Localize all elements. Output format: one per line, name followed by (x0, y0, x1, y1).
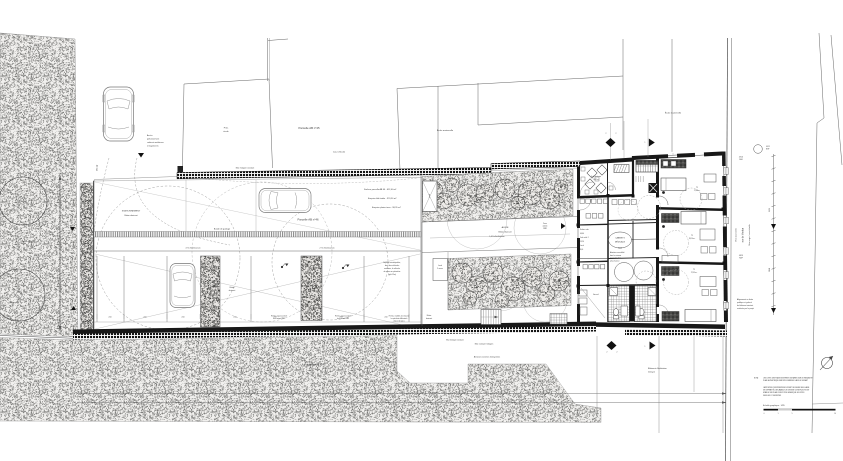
svg-text:1,5% d’inclinaison: 1,5% d’inclinaison (489, 236, 504, 238)
svg-text:restituée par le projet: restituée par le projet (737, 307, 754, 310)
svg-text:T1: T1 (693, 269, 695, 271)
svg-text:drainant: drainant (229, 289, 236, 292)
svg-text:2,50: 2,50 (143, 317, 146, 319)
svg-text:Emprise bâti totale : 374,50 m: Emprise bâti totale : 374,50 m² (368, 197, 397, 200)
svg-text:piétonnement: piétonnement (147, 138, 160, 141)
svg-text:Bâtiment d’habitation: Bâtiment d’habitation (648, 367, 667, 370)
svg-text:SEUILLES ET DEFINITIES: SEUILLES ET DEFINITIES (763, 395, 781, 397)
svg-text:15,94: 15,94 (57, 250, 59, 256)
svg-text:Haie: Haie (209, 293, 211, 297)
svg-text:Mur mitoyen existant: Mur mitoyen existant (446, 339, 464, 342)
svg-text:1: 1 (645, 346, 646, 348)
svg-text:15,20: 15,20 (580, 241, 584, 243)
svg-text:2 roues: 2 roues (437, 267, 443, 270)
svg-text:Cab. méd. 2: Cab. méd. 2 (580, 237, 589, 239)
svg-text:Béton drainant: Béton drainant (124, 214, 137, 217)
svg-text:Parcelle AB n°45: Parcelle AB n°45 (304, 363, 325, 367)
svg-text:2: 2 (617, 352, 618, 354)
svg-text:Echelle graphique : 1/85: Echelle graphique : 1/85 (763, 405, 785, 407)
svg-text:Alignement en limite: Alignement en limite (737, 298, 753, 301)
svg-text:NGF: NGF (739, 159, 743, 161)
svg-text:8,50: 8,50 (518, 400, 522, 402)
svg-text:entrantes, le véhicule: entrantes, le véhicule (384, 267, 400, 270)
svg-text:École maternelle: École maternelle (437, 129, 454, 132)
svg-text:Béton drainant: Béton drainant (498, 231, 511, 234)
svg-text:44,60: 44,60 (580, 233, 584, 235)
svg-text:STATIONNEMENT: STATIONNEMENT (122, 210, 141, 213)
svg-text:NGF: NGF (766, 149, 769, 151)
svg-text:18,6 ngf: 18,6 ngf (97, 164, 99, 171)
svg-text:drainant: drainant (426, 317, 433, 320)
svg-text:Béton: Béton (230, 286, 235, 289)
svg-text:Mur existant mitoyen: Mur existant mitoyen (475, 343, 493, 346)
svg-text:2 % d’inclinaison: 2 % d’inclinaison (320, 248, 335, 250)
svg-text:Local: Local (580, 245, 584, 247)
svg-text:Surface parcelle AB 46 : 612,4: Surface parcelle AB 46 : 612,40 m² (364, 188, 397, 191)
svg-text:2,50: 2,50 (108, 317, 111, 319)
svg-text:28,40: 28,40 (769, 268, 771, 272)
svg-text:2,50: 2,50 (233, 317, 236, 319)
svg-text:cabinets médicaux: cabinets médicaux (147, 141, 164, 144)
svg-text:Parcelle AB n°46: Parcelle AB n°46 (297, 218, 318, 222)
svg-text:10: 10 (834, 413, 836, 415)
svg-text:Local: Local (429, 193, 431, 198)
svg-text:NGF: NGF (739, 258, 743, 260)
svg-text:ALLÉE: ALLÉE (502, 226, 509, 229)
svg-text:T1: T1 (696, 187, 698, 189)
svg-text:2: 2 (607, 352, 608, 354)
svg-text:Mirconnier: Mirconnier (9, 302, 19, 304)
svg-text:rue de Verdun: rue de Verdun (742, 227, 745, 242)
svg-text:Voie accessible: Voie accessible (736, 227, 738, 242)
svg-text:54,20: 54,20 (468, 391, 473, 393)
svg-text:1: 1 (645, 142, 646, 144)
svg-text:Mur mitoyen: Mur mitoyen (428, 391, 438, 394)
svg-text:du bâtiment existant: du bâtiment existant (737, 304, 754, 307)
svg-text:2: 2 (616, 133, 617, 135)
svg-text:mitoyen: mitoyen (648, 371, 655, 374)
svg-text:Béton: Béton (427, 314, 431, 317)
svg-text:Parcelle AB n°45: Parcelle AB n°45 (20, 240, 36, 243)
svg-text:publique et gabarit: publique et gabarit (737, 301, 752, 304)
svg-text:Zone: Zone (543, 223, 547, 225)
svg-text:école: école (223, 131, 229, 133)
svg-text:de retour au périmètre: de retour au périmètre (384, 270, 401, 273)
svg-text:Parcelle AB n°45: Parcelle AB n°45 (298, 126, 319, 130)
svg-text:Annexes voisines mitoyennes: Annexes voisines mitoyennes (474, 356, 500, 359)
svg-text:Dépose minute/palette,: Dépose minute/palette, (383, 261, 401, 264)
svg-text:Mur mitoyen existant: Mur mitoyen existant (236, 167, 255, 170)
svg-text:Bande de guidage: Bande de guidage (214, 229, 231, 231)
svg-text:2: 2 (606, 133, 607, 135)
svg-text:École maternelle: École maternelle (665, 112, 682, 115)
svg-text:Mirconnier: Mirconnier (9, 210, 19, 212)
svg-text:8,40: 8,40 (580, 249, 583, 251)
svg-text:T1: T1 (691, 235, 693, 237)
svg-text:MÉDICAUX: MÉDICAUX (615, 241, 626, 244)
svg-text:4 % d’inclinaison: 4 % d’inclinaison (186, 248, 201, 250)
svg-text:(light 15m): (light 15m) (388, 273, 396, 276)
svg-text:Emprise pleine terre : 98,95 m: Emprise pleine terre : 98,95 m² (372, 206, 401, 209)
svg-text:92,20: 92,20 (618, 248, 622, 250)
svg-text:35,95: 35,95 (769, 208, 771, 212)
svg-text:dans des véhicules: dans des véhicules (385, 265, 400, 267)
svg-text:49.21: 49.21 (766, 146, 770, 148)
svg-text:dans les niveaux: dans les niveaux (610, 255, 621, 257)
svg-text:Surface cab.: Surface cab. (580, 229, 590, 231)
svg-text:Cour d’école: Cour d’école (333, 151, 346, 154)
svg-text:5 arbr.: 5 arbr. (311, 287, 313, 293)
svg-text:et logements: et logements (147, 145, 158, 148)
svg-text:Local: Local (438, 265, 443, 267)
svg-text:2,50: 2,50 (181, 317, 184, 319)
svg-text:CABINETS: CABINETS (615, 237, 625, 240)
svg-text:2,50: 2,50 (384, 317, 387, 319)
svg-text:Voie engin / voie échelle: Voie engin / voie échelle (749, 223, 751, 245)
svg-text:Accès: Accès (147, 134, 152, 137)
